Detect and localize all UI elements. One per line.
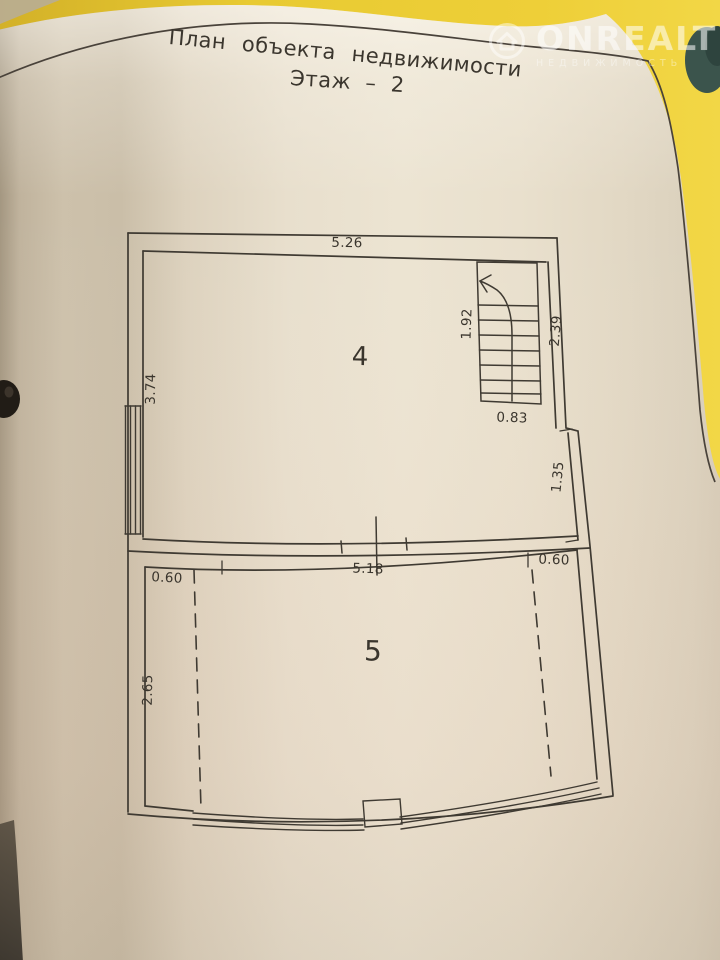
room5-number: 5 (364, 634, 382, 667)
dim-right-wall-lower: 1.35 (548, 461, 567, 494)
dim-stair-width: 0.83 (496, 409, 528, 426)
dim-room5-left-height: 2.65 (140, 674, 157, 706)
dim-stair-right-height: 2.39 (547, 315, 566, 348)
dim-stair-length: 1.92 (458, 308, 475, 340)
dim-room4-left-height: 3.74 (143, 373, 160, 405)
dim-room5-left-offset: 0.60 (151, 569, 183, 587)
photo-of-floor-plan-page: План объекта недвижимости Этаж – 2 ONREA… (0, 0, 720, 960)
dim-room4-top-width: 5.26 (331, 235, 363, 252)
floor-plan-scene (0, 0, 720, 960)
dim-room5-top-width: 5.18 (352, 560, 384, 577)
dim-room5-right-offset: 0.60 (538, 551, 570, 568)
room4-number: 4 (351, 342, 368, 372)
